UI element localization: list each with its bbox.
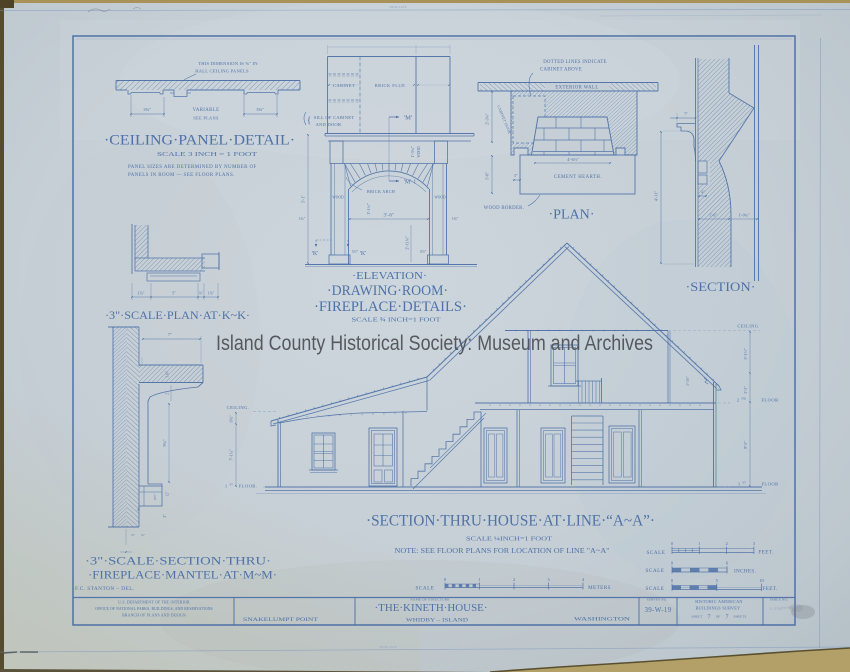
svg-text:SILL OF CABINET: SILL OF CABINET bbox=[314, 115, 355, 120]
svg-text:'K': 'K' bbox=[360, 251, 367, 257]
svg-text:NOTE: SEE FLOOR PLANS FOR LOCA: NOTE: SEE FLOOR PLANS FOR LOCATION OF LI… bbox=[395, 546, 610, 555]
svg-text:·FIREPLACE·DETAILS·: ·FIREPLACE·DETAILS· bbox=[314, 299, 467, 315]
svg-text:TRIM LINE: TRIM LINE bbox=[379, 645, 397, 649]
svg-text:CEMENT HEARTH.: CEMENT HEARTH. bbox=[554, 175, 602, 180]
svg-text:CABINET ABOVE: CABINET ABOVE bbox=[540, 68, 582, 73]
svg-text:WOOD: WOOD bbox=[332, 196, 344, 200]
svg-text:·SECTION·THRU·HOUSE·AT·LINE·“A: ·SECTION·THRU·HOUSE·AT·LINE·“A~A”· bbox=[366, 513, 655, 530]
svg-text:CABINET: CABINET bbox=[333, 83, 355, 88]
svg-text:1'-0¾": 1'-0¾" bbox=[738, 213, 749, 218]
svg-text:·CEILING·PANEL·DETAIL·: ·CEILING·PANEL·DETAIL· bbox=[104, 133, 295, 149]
svg-text:WOOD: WOOD bbox=[434, 196, 446, 200]
svg-text:⅝": ⅝" bbox=[141, 533, 146, 537]
svg-text:SCALE 3 INCH = 1 FOOT: SCALE 3 INCH = 1 FOOT bbox=[157, 151, 257, 158]
svg-text:SHEETS: SHEETS bbox=[734, 615, 747, 619]
svg-text:SCALE: SCALE bbox=[416, 586, 435, 592]
svg-text:BRICK ARCH: BRICK ARCH bbox=[367, 189, 395, 194]
svg-text:5'-1½": 5'-1½" bbox=[743, 348, 748, 359]
svg-text:1¾": 1¾" bbox=[452, 217, 459, 221]
svg-text:FEET.: FEET. bbox=[758, 550, 773, 556]
svg-text:·PLAN·: ·PLAN· bbox=[549, 207, 595, 222]
svg-text:9'-5": 9'-5" bbox=[743, 441, 748, 449]
svg-text:SHEET: SHEET bbox=[692, 615, 703, 619]
svg-text:2'-3⅜": 2'-3⅜" bbox=[485, 113, 490, 124]
svg-text:1'-8": 1'-8" bbox=[485, 172, 490, 180]
svg-text:FLOOR.: FLOOR. bbox=[239, 484, 258, 489]
svg-text:THIS DIMENSION IS ⅝" IN: THIS DIMENSION IS ⅝" IN bbox=[198, 61, 258, 66]
svg-text:·3"·SCALE·PLAN·AT·K~K·: ·3"·SCALE·PLAN·AT·K~K· bbox=[105, 308, 250, 322]
svg-text:{: { bbox=[307, 115, 311, 125]
svg-text:INCHES.: INCHES. bbox=[734, 569, 756, 575]
svg-text:39-W-19: 39-W-19 bbox=[645, 606, 672, 614]
svg-text:3'-6": 3'-6" bbox=[383, 214, 394, 219]
svg-text:'M': 'M' bbox=[404, 115, 412, 122]
svg-text:3'-3½": 3'-3½" bbox=[686, 376, 690, 386]
svg-text:WHIDBY – ISLAND: WHIDBY – ISLAND bbox=[406, 618, 468, 624]
svg-text:BRICK FLUE: BRICK FLUE bbox=[375, 83, 406, 88]
svg-text:WOOD BORDER.: WOOD BORDER. bbox=[484, 206, 524, 211]
svg-text:DOTTED LINES INDICATE: DOTTED LINES INDICATE bbox=[543, 60, 607, 65]
svg-text:2": 2" bbox=[166, 391, 170, 395]
svg-text:·DRAWING·ROOM·: ·DRAWING·ROOM· bbox=[327, 283, 448, 299]
svg-text:10: 10 bbox=[759, 578, 764, 583]
svg-text:SNAKELUMPT POINT: SNAKELUMPT POINT bbox=[243, 617, 319, 623]
svg-text:10¾": 10¾" bbox=[230, 415, 234, 423]
svg-text:SURVEY NO.: SURVEY NO. bbox=[647, 598, 668, 602]
svg-text:SEE PLANS: SEE PLANS bbox=[193, 116, 219, 121]
svg-text:VARIABLE: VARIABLE bbox=[193, 108, 220, 113]
svg-text:F.C. STANTON – DEL.: F.C. STANTON – DEL. bbox=[75, 586, 135, 592]
svg-text:HALL CEILING PANELS: HALL CEILING PANELS bbox=[195, 69, 249, 74]
svg-text:·3"·SCALE·SECTION·THRU·: ·3"·SCALE·SECTION·THRU· bbox=[85, 554, 271, 568]
svg-text:2'-11⅝": 2'-11⅝" bbox=[405, 236, 410, 249]
svg-text:TRIM LINE: TRIM LINE bbox=[389, 5, 407, 9]
svg-text:1¾": 1¾" bbox=[299, 217, 306, 221]
svg-text:12": 12" bbox=[166, 491, 170, 497]
svg-text:U.S. DEPARTMENT OF THE INTERIO: U.S. DEPARTMENT OF THE INTERIOR bbox=[118, 601, 190, 605]
svg-text:WASHINGTON: WASHINGTON bbox=[574, 617, 630, 623]
svg-text:METERS: METERS bbox=[588, 585, 611, 591]
svg-text:1⅞": 1⅞" bbox=[138, 291, 145, 296]
svg-text:9¾": 9¾" bbox=[162, 439, 167, 446]
svg-text:4'-6½": 4'-6½" bbox=[567, 157, 579, 162]
svg-text:CEILING.: CEILING. bbox=[227, 405, 250, 410]
svg-text:5½": 5½" bbox=[352, 250, 359, 254]
svg-text:Island County Historical Socie: Island County Historical Society: Museum… bbox=[216, 331, 653, 355]
svg-text:SCALE ¾ INCH=1 FOOT: SCALE ¾ INCH=1 FOOT bbox=[352, 317, 441, 324]
svg-text:EXTERIOR WALL: EXTERIOR WALL bbox=[555, 86, 598, 91]
svg-text:FLOOR: FLOOR bbox=[761, 398, 779, 403]
svg-text:1⅞": 1⅞" bbox=[208, 291, 215, 296]
svg-text:·SECTION·: ·SECTION· bbox=[686, 279, 756, 294]
svg-text:5": 5" bbox=[514, 174, 518, 178]
svg-text:INDEX NO.: INDEX NO. bbox=[770, 598, 788, 602]
svg-text:3": 3" bbox=[162, 514, 167, 518]
svg-text:BRANCH OF PLANS AND DESIGN: BRANCH OF PLANS AND DESIGN bbox=[122, 614, 186, 618]
svg-text:7: 7 bbox=[708, 615, 711, 621]
svg-text:HISTORIC AMERICAN: HISTORIC AMERICAN bbox=[695, 599, 742, 604]
svg-text:SCALE: SCALE bbox=[646, 586, 665, 592]
svg-text:5": 5" bbox=[172, 291, 176, 296]
svg-text:'K': 'K' bbox=[312, 251, 319, 257]
svg-text:AND DOOR.: AND DOOR. bbox=[315, 122, 342, 127]
svg-text:1'-3¾": 1'-3¾" bbox=[410, 146, 415, 157]
svg-text:10½": 10½" bbox=[153, 493, 157, 501]
svg-text:1⅝": 1⅝" bbox=[166, 370, 170, 377]
svg-text:4'-11": 4'-11" bbox=[654, 191, 659, 202]
svg-text:4": 4" bbox=[701, 190, 705, 195]
svg-text:5½": 5½" bbox=[420, 250, 427, 254]
svg-text:·THE·KINETH·HOUSE·: ·THE·KINETH·HOUSE· bbox=[375, 603, 488, 614]
svg-text:7": 7" bbox=[168, 332, 172, 337]
svg-text:WOOD: WOOD bbox=[417, 146, 421, 158]
svg-text:7: 7 bbox=[726, 615, 729, 621]
svg-text:7'-1¾": 7'-1¾" bbox=[229, 449, 234, 460]
svg-text:SCALE: SCALE bbox=[646, 568, 665, 574]
svg-text:⅞": ⅞" bbox=[199, 292, 204, 296]
svg-text:BUILDINGS SURVEY: BUILDINGS SURVEY bbox=[696, 606, 741, 611]
svg-text:SCALE ¼INCH=1 FOOT: SCALE ¼INCH=1 FOOT bbox=[466, 536, 552, 543]
svg-text:FLOOR: FLOOR bbox=[761, 482, 779, 487]
svg-text:3'-3": 3'-3" bbox=[744, 386, 748, 394]
svg-text:1'-6": 1'-6" bbox=[709, 213, 717, 218]
svg-text:ST: ST bbox=[230, 483, 234, 487]
svg-text:7": 7" bbox=[684, 112, 688, 117]
svg-text:3⅝": 3⅝" bbox=[256, 107, 264, 112]
svg-text:SCALE: SCALE bbox=[647, 550, 666, 556]
svg-text:5'-1": 5'-1" bbox=[301, 195, 306, 204]
svg-text:PANEL SIZES ARE DETERMINED BY: PANEL SIZES ARE DETERMINED BY NUMBER OF bbox=[128, 165, 257, 170]
svg-text:·ELEVATION·: ·ELEVATION· bbox=[352, 270, 427, 282]
svg-text:⅞": ⅞" bbox=[131, 533, 136, 537]
svg-text:ST: ST bbox=[743, 481, 747, 485]
svg-text:CEILING: CEILING bbox=[737, 324, 758, 329]
svg-text:3⅝": 3⅝" bbox=[143, 107, 151, 112]
svg-text:·FIREPLACE·MANTEL·AT·M~M·: ·FIREPLACE·MANTEL·AT·M~M· bbox=[88, 568, 277, 582]
svg-text:NAME OF STRUCTURE: NAME OF STRUCTURE bbox=[410, 598, 449, 602]
svg-text:3'-1¼": 3'-1¼" bbox=[366, 203, 371, 214]
svg-text:FEET.: FEET. bbox=[762, 586, 777, 592]
svg-text:PANELS IN ROOM — SEE FLOOR PLA: PANELS IN ROOM — SEE FLOOR PLANS. bbox=[128, 173, 235, 178]
svg-text:OF: OF bbox=[716, 615, 720, 619]
